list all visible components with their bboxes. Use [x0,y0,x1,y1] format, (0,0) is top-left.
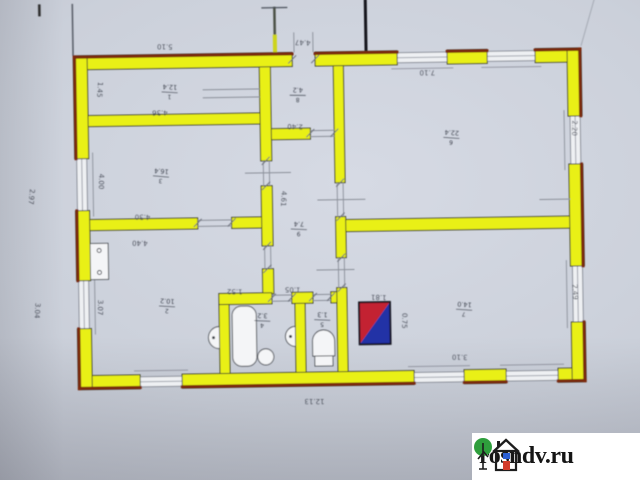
room-label: 112.4 [161,82,178,100]
toilet [312,330,334,356]
svg-text:22.4: 22.4 [444,128,459,137]
chimney-marks [39,0,596,56]
room-label: 316.4 [152,166,169,184]
dimension-label: 3.04 [32,303,41,320]
dimension-label: 4.00 [97,174,105,190]
dimension-label: 7.10 [420,68,436,76]
toilet-cistern [315,356,333,366]
svg-text:14.0: 14.0 [457,300,472,309]
svg-text:5: 5 [320,320,324,327]
svg-text:4: 4 [260,321,264,328]
floor-plan-drawing: 5.104.477.102.202.492.971.454.003.074.36… [0,0,640,480]
svg-text:8: 8 [295,96,299,103]
room-label: 714.0 [456,300,473,318]
dimension-label: 1.05 [285,285,301,293]
round-sink [258,349,274,365]
dimension-label: 4.61 [279,191,288,207]
dimension-label: 2.40 [287,122,303,131]
watermark: rosndv.ru [472,433,640,480]
room-label: 210.2 [159,296,176,314]
svg-text:7.4: 7.4 [294,220,305,228]
svg-text:2: 2 [165,307,169,314]
svg-text:1.3: 1.3 [317,310,328,318]
dimension-label: 4.36 [152,108,168,116]
watermark-logo [472,433,524,473]
bathtub [232,306,257,366]
svg-text:1: 1 [167,93,171,100]
dimension-label: 12.13 [304,397,324,405]
room-label: 51.3 [314,310,331,328]
svg-text:16.4: 16.4 [154,166,169,175]
dimension-label: 4.47 [295,38,311,47]
floorplan-photo: 5.104.477.102.202.492.971.454.003.074.36… [0,0,640,480]
svg-text:4.2: 4.2 [293,86,303,94]
svg-text:3.2: 3.2 [257,311,268,319]
room-label: 84.2 [290,86,306,103]
stove-symbol [359,302,391,344]
svg-text:12.4: 12.4 [163,82,178,91]
svg-text:9: 9 [296,230,300,237]
dimension-label: 1.52 [227,287,243,295]
dimension-label: 3.07 [96,300,104,316]
dimension-label: 5.10 [157,42,173,50]
svg-text:3: 3 [158,177,163,184]
svg-text:7: 7 [461,310,465,317]
dimension-label: 2.20 [570,120,578,136]
dimension-label: 3.10 [452,353,468,361]
dimension-label: 0.75 [400,313,408,329]
dimension-label: 4.40 [132,239,148,247]
svg-text:6: 6 [449,138,453,145]
room-label: 97.4 [291,220,308,238]
dimension-label: 4.30 [135,213,151,221]
dimension-label: 1.45 [95,82,104,98]
room-label: 622.4 [443,128,460,146]
dimension-label: 1.81 [371,293,387,302]
svg-text:10.2: 10.2 [160,297,175,306]
dimension-label: 2.49 [570,284,579,300]
dimension-label: 2.97 [27,189,36,205]
tree-icon [474,438,492,469]
plan-group: 5.104.477.102.202.492.971.454.003.074.36… [23,0,601,410]
house-icon [493,440,519,470]
